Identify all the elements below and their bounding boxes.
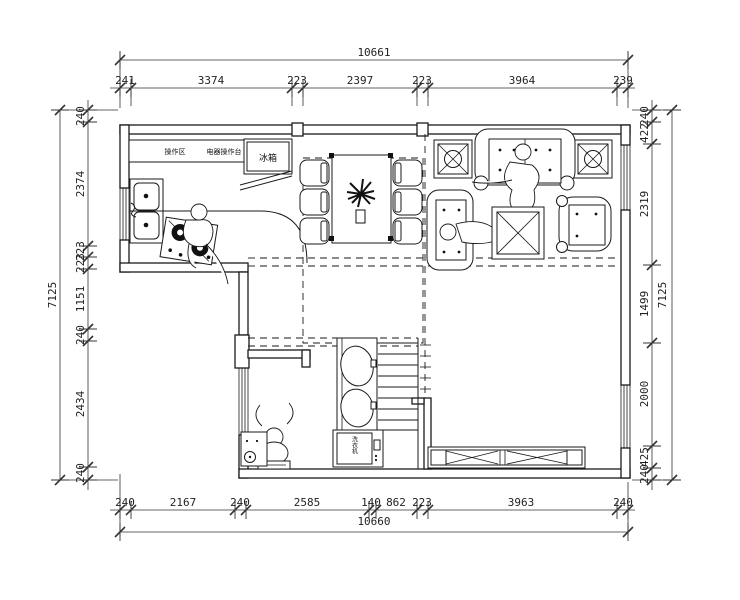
dim-label: 240 bbox=[115, 496, 135, 509]
dim-label: 240 bbox=[638, 106, 651, 126]
dim-label: 240 bbox=[230, 496, 250, 509]
window-right-top bbox=[621, 145, 630, 210]
dining-area bbox=[300, 153, 422, 244]
planter-left bbox=[434, 140, 472, 178]
dim-label: 2585 bbox=[294, 496, 321, 509]
dim-label: 140 bbox=[361, 496, 381, 509]
kitchen-zone-label: 操作区 bbox=[165, 147, 186, 156]
top-dimension-chain: 10661 241 3374 223 2397 223 3964 239 bbox=[110, 46, 635, 108]
dim-top-total: 10661 bbox=[357, 46, 390, 59]
bottom-dimension-chain: 240 2167 240 2585 140 862 223 3963 240 1… bbox=[110, 474, 635, 541]
fridge: 冰箱 bbox=[240, 139, 292, 190]
dim-label: 241 bbox=[115, 74, 135, 87]
window-right-bottom bbox=[621, 385, 630, 448]
dim-left-total: 7125 bbox=[46, 282, 59, 309]
dining-table bbox=[332, 155, 391, 243]
dim-right-total: 7125 bbox=[656, 282, 669, 309]
washing-machine-label: 洗衣机 bbox=[351, 435, 358, 455]
dining-chair bbox=[393, 160, 422, 186]
fridge-label: 冰箱 bbox=[259, 152, 277, 164]
dim-label: 240 bbox=[638, 464, 651, 484]
dim-label: 2434 bbox=[74, 390, 87, 417]
dining-chair bbox=[393, 189, 422, 215]
dim-label: 2374 bbox=[74, 170, 87, 197]
dim-label: 425 bbox=[638, 447, 651, 467]
right-dimension-chain: 240 422 2319 1499 2000 425 240 7125 bbox=[632, 100, 681, 490]
dining-chair bbox=[300, 189, 329, 215]
dim-label: 2000 bbox=[638, 381, 651, 408]
dim-label: 240 bbox=[613, 496, 633, 509]
dim-label: 240 bbox=[74, 325, 87, 345]
dining-chair bbox=[393, 218, 422, 244]
kitchen: 操作区 电器操作台 冰箱 bbox=[129, 139, 307, 284]
wash-basin-cabinet bbox=[241, 432, 267, 466]
dim-label: 862 bbox=[386, 496, 406, 509]
dining-chair bbox=[300, 160, 329, 186]
washing-machine: 洗衣机 bbox=[333, 430, 383, 467]
tv-cabinet bbox=[428, 447, 585, 468]
dim-label: 2167 bbox=[170, 496, 197, 509]
left-dimension-chain: 7125 240 2374 223 223 1151 240 2434 240 bbox=[46, 100, 118, 490]
vanity bbox=[337, 338, 377, 430]
dim-label: 2319 bbox=[638, 191, 651, 218]
dim-label: 240 bbox=[74, 463, 87, 483]
planter-right bbox=[574, 140, 612, 178]
dim-label: 240 bbox=[74, 106, 87, 126]
dining-chair bbox=[300, 218, 329, 244]
armchair bbox=[557, 196, 612, 253]
coffee-table bbox=[492, 207, 544, 259]
dim-label: 3964 bbox=[509, 74, 536, 87]
dim-label: 239 bbox=[613, 74, 633, 87]
dim-label: 223 bbox=[412, 496, 432, 509]
dim-bottom-total: 10660 bbox=[357, 515, 390, 528]
window-lower-left bbox=[239, 368, 248, 435]
dim-label: 223 bbox=[412, 74, 432, 87]
floor-plan-canvas: 10661 241 3374 223 2397 223 3964 239 240… bbox=[0, 0, 740, 600]
dim-label: 422 bbox=[638, 123, 651, 143]
floor-plan-drawing: 10661 241 3374 223 2397 223 3964 239 240… bbox=[0, 0, 740, 600]
window-kitchen-left bbox=[120, 188, 129, 240]
dim-label: 2397 bbox=[347, 74, 374, 87]
dim-label: 1151 bbox=[74, 286, 87, 313]
living-room bbox=[427, 129, 612, 468]
dim-label: 223 bbox=[74, 253, 87, 273]
dim-label: 223 bbox=[287, 74, 307, 87]
dim-label: 3374 bbox=[198, 74, 225, 87]
appliance-counter-label: 电器操作台 bbox=[207, 147, 242, 156]
dim-label: 1499 bbox=[638, 291, 651, 318]
dim-label: 3963 bbox=[508, 496, 535, 509]
